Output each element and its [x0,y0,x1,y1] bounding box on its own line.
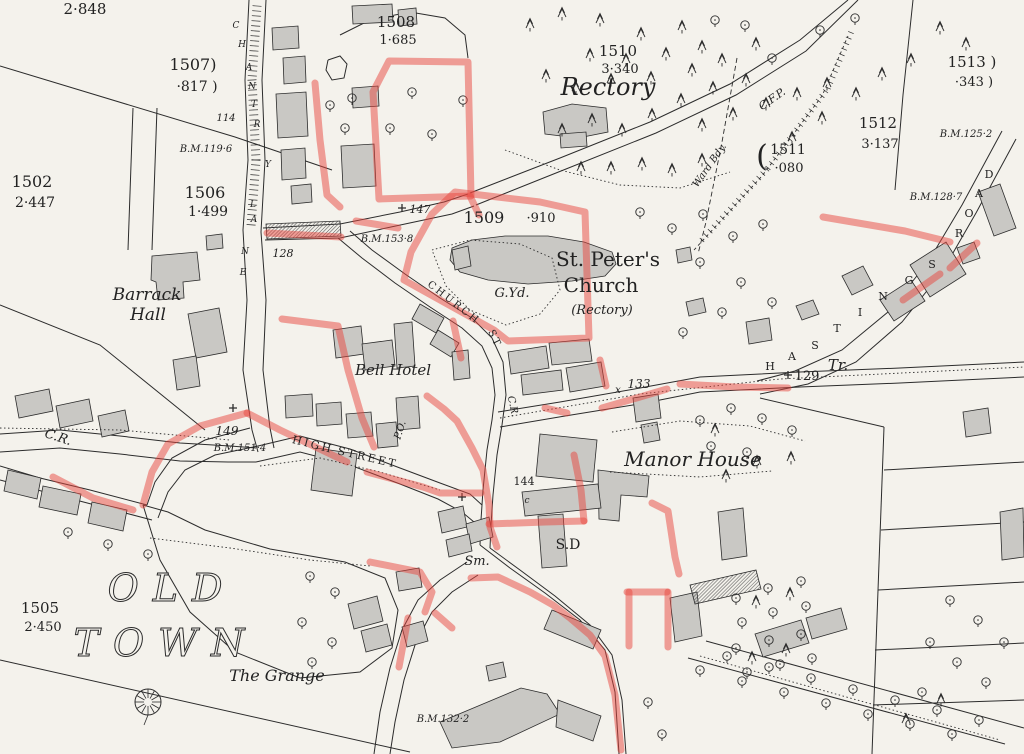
conifer-tree-icon [711,424,719,437]
building [15,389,53,418]
conifer-tree-icon [718,54,726,67]
layer-lbl: 2·8481507)·817 )114B.M.119·615022·447150… [12,0,997,725]
building [4,470,41,499]
map-label: Bell Hotel [354,361,431,379]
map-label: c [524,496,529,506]
deciduous-tree-icon [326,101,334,112]
conifer-tree-icon [729,108,737,121]
map-canvas: 2·8481507)·817 )114B.M.119·615022·447150… [0,0,1024,754]
deciduous-tree-icon [386,124,394,135]
deciduous-tree-icon [428,130,436,141]
conifer-tree-icon [607,162,615,175]
field-line [158,446,258,518]
building [746,318,772,344]
map-label: H [237,40,246,50]
building [272,26,299,50]
hatch-tick [251,21,260,22]
map-image: 2·8481507)·817 )114B.M.119·615022·447150… [0,0,1024,754]
conifer-tree-icon [558,8,566,21]
conifer-tree-icon [662,48,670,61]
building [686,298,706,316]
conifer-tree-icon [637,28,645,41]
map-label: 114 [216,113,235,124]
conifer-tree-icon [818,112,826,125]
building [98,410,129,437]
hatch-tick [250,175,259,176]
red-route-highlight [435,613,452,628]
building [508,346,549,374]
conifer-tree-icon [786,588,794,601]
map-label: B.M.125·2 [939,129,993,140]
conifer-tree-icon [752,596,760,609]
building [641,422,660,443]
building [536,434,597,482]
field-line [884,462,1024,470]
map-label: Church [564,273,639,297]
conifer-tree-icon [852,88,860,101]
deciduous-tree-icon [933,706,941,717]
deciduous-tree-icon [788,426,796,437]
deciduous-tree-icon [849,685,857,696]
map-label: 133 [628,377,651,391]
building [412,304,444,333]
map-label: T [833,322,841,335]
field-line [147,428,250,505]
field-line [152,108,157,250]
deciduous-tree-icon [306,572,314,583]
deciduous-tree-icon [738,677,746,688]
conifer-tree-icon [577,162,585,175]
deciduous-tree-icon [699,210,707,221]
conifer-tree-icon [878,68,886,81]
building [718,508,747,560]
map-label: 3·340 [601,62,638,77]
map-label: 1508 [377,13,415,31]
deciduous-tree-icon [64,528,72,539]
map-label: 1509 [464,208,505,227]
map-label: B.M.151·4 [213,443,267,454]
deciduous-tree-icon [658,730,666,741]
dashed-path [150,538,370,566]
conifer-tree-icon [787,452,795,465]
field-line [688,658,1005,744]
deciduous-tree-icon [758,414,766,425]
map-label: S [928,258,936,271]
map-label: B.M.119·6 [179,144,233,155]
map-label: 1512 [859,114,897,132]
map-label: Y [265,160,272,170]
deciduous-tree-icon [636,208,644,219]
hatch-tick [250,180,259,181]
map-label: 1506 [185,183,226,202]
deciduous-tree-icon [797,577,805,588]
deciduous-tree-icon [668,224,676,235]
deciduous-tree-icon [144,550,152,561]
map-label: O [964,207,973,220]
map-label: TOWN [74,621,259,665]
building [283,56,306,84]
field-line [875,643,1024,650]
hatch-tick [252,11,261,12]
hatch-tick [251,170,260,171]
red-route-highlight [399,618,408,667]
map-label: 1511 [770,142,806,158]
hatch-tick [846,37,852,39]
map-label: ·910 [527,211,556,226]
red-route-highlight [367,472,481,493]
building [188,308,227,358]
hatch-tick [249,195,258,196]
windmill-tail [144,715,148,725]
red-route-highlight [545,408,567,413]
field-line [895,0,913,190]
map-label: x [615,385,621,396]
map-label: S.D [556,537,581,553]
hatch-tick [250,46,259,47]
map-label: B.M.128·7 [909,192,963,203]
conifer-tree-icon [542,70,550,83]
conifer-tree-icon [902,714,910,727]
windmill-spoke [142,705,147,713]
map-label: D [985,168,994,181]
building [281,148,306,180]
deciduous-tree-icon [737,278,745,289]
conifer-tree-icon [793,88,801,101]
map-label: ·080 [775,161,804,176]
map-label: N [878,290,888,303]
deciduous-tree-icon [802,602,810,613]
deciduous-tree-icon [104,540,112,551]
field-line [128,108,133,250]
conifer-tree-icon [677,94,685,107]
deciduous-tree-icon [765,663,773,674]
building [963,408,991,437]
deciduous-tree-icon [864,710,872,721]
deciduous-tree-icon [696,416,704,427]
map-label: 2·848 [64,0,107,18]
hatch-tick [251,26,260,27]
red-route-highlight [489,521,584,524]
conifer-tree-icon [638,158,646,171]
hatch-tick [250,36,259,37]
deciduous-tree-icon [764,584,772,595]
map-label: C.F.P. [756,85,788,113]
deciduous-tree-icon [982,678,990,689]
building [341,144,376,188]
deciduous-tree-icon [408,88,416,99]
conifer-tree-icon [586,49,594,62]
deciduous-tree-icon [851,14,859,25]
building [978,184,1016,236]
map-label: 1510 [599,42,637,60]
conifer-tree-icon [722,470,730,483]
deciduous-tree-icon [644,698,652,709]
hatch-tick [848,31,854,33]
hatch-tick [250,185,259,186]
building [1000,508,1024,560]
map-label: L [249,200,256,210]
map-label: Barrack [112,285,182,305]
deciduous-tree-icon [696,666,704,677]
map-label: H [765,360,775,373]
deciduous-tree-icon [891,696,899,707]
map-label: 149 [216,424,239,438]
map-label: 1·685 [379,33,416,48]
field-line [760,398,884,427]
map-label: ·343 ) [955,75,993,90]
map-label: A [250,215,258,225]
deciduous-tree-icon [759,220,767,231]
hatch-tick [249,61,258,62]
red-route-highlight [373,61,471,199]
field-line [760,139,1016,394]
map-label: S [811,339,819,352]
building [522,484,601,516]
map-label: A [245,63,253,73]
red-route-highlight [356,221,398,228]
building [556,700,601,741]
deciduous-tree-icon [822,699,830,710]
map-label: 3·137 [861,137,898,152]
red-route-highlight [680,384,788,388]
map-label: 2·450 [24,620,61,635]
hatch-tick [248,76,257,77]
deciduous-tree-icon [331,588,339,599]
map-label: A [974,187,984,200]
building [316,402,342,426]
deciduous-tree-icon [808,654,816,665]
red-route-highlight [267,233,341,237]
map-label: OLD [108,566,237,610]
map-label: N [247,82,257,92]
building [521,370,563,395]
cross-mark [229,404,237,412]
map-label: 147 [410,203,431,216]
building [842,266,873,295]
hatch-tick [841,48,847,50]
building [348,596,383,629]
conifer-tree-icon [752,38,760,51]
deciduous-tree-icon [723,652,731,663]
red-route-highlight [823,217,950,242]
deciduous-tree-icon [816,26,824,37]
map-label: St. Peter's [556,247,660,271]
red-route-highlight [652,503,679,574]
hatch-tick [249,51,258,52]
map-label: Sm. [464,554,489,569]
deciduous-tree-icon [918,688,926,699]
deciduous-tree-icon [328,638,336,649]
hatch-tick [251,31,260,32]
map-label: Hall [129,305,166,325]
deciduous-tree-icon [718,308,726,319]
map-label: E [239,268,247,278]
windmill-spoke [151,696,159,701]
map-label: 144 [514,475,535,488]
map-label: 1507) [170,55,217,74]
map-label: N [240,247,250,257]
deciduous-tree-icon [298,618,306,629]
map-label: C [233,21,240,31]
conifer-tree-icon [596,14,604,27]
map-label: Ward Bdy. [691,142,729,190]
building [276,92,308,138]
map-label: B.M.153·8 [360,234,414,245]
deciduous-tree-icon [341,124,349,135]
map-label: Manor House [623,447,762,471]
map-label: 1505 [21,599,59,617]
conifer-tree-icon [698,41,706,54]
conifer-tree-icon [688,64,696,77]
map-label: G [905,274,914,287]
building [438,506,467,533]
map-label: 1513 ) [948,53,997,71]
conifer-tree-icon [678,21,686,34]
map-label: 129 [795,369,820,384]
building [452,246,471,270]
conifer-tree-icon [709,82,717,95]
deciduous-tree-icon [711,16,719,27]
map-label: C.R. [43,426,74,449]
conifer-tree-icon [748,652,756,665]
map-label: Rectory [560,73,656,101]
building [549,339,592,365]
conifer-tree-icon [698,119,706,132]
building [206,234,223,250]
field-line [878,582,1024,590]
deciduous-tree-icon [906,720,914,731]
building [486,662,506,681]
map-label: C.R. [505,395,520,418]
deciduous-tree-icon [741,21,749,32]
conifer-tree-icon [668,164,676,177]
conifer-tree-icon [907,54,915,67]
building [796,300,819,320]
hatch-tick [252,16,261,17]
map-label: Tr. [828,356,848,374]
building [173,356,200,390]
hatch-tick [251,165,260,166]
deciduous-tree-icon [768,298,776,309]
building [560,132,587,148]
map-label: 128 [273,247,294,260]
field-line [326,56,347,80]
deciduous-tree-icon [729,232,737,243]
deciduous-tree-icon [732,594,740,605]
conifer-tree-icon [526,19,534,32]
deciduous-tree-icon [738,618,746,629]
hatch-tick [250,41,259,42]
building [361,624,392,652]
deciduous-tree-icon [727,404,735,415]
dashed-path [612,421,805,441]
map-label: A [787,350,797,363]
hatched-strip [690,570,761,604]
deciduous-tree-icon [946,596,954,607]
deciduous-tree-icon [953,658,961,669]
windmill-spoke [151,704,159,709]
map-label: T [251,100,258,110]
map-label: ( [756,139,768,174]
windmill-spoke [137,696,145,701]
deciduous-tree-icon [679,328,687,339]
map-label: 1502 [12,172,53,191]
hatch-tick [249,190,258,191]
building [676,247,692,263]
field-line [0,660,410,752]
deciduous-tree-icon [696,258,704,269]
map-label: (Rectory) [571,303,633,318]
map-label: B.M.132·2 [416,714,470,725]
hatch-tick [249,56,258,57]
building [285,394,313,418]
deciduous-tree-icon [807,674,815,685]
map-label: R [253,120,261,130]
deciduous-tree-icon [780,688,788,699]
building [56,399,93,428]
building [806,608,847,639]
windmill-spoke [137,704,145,709]
deciduous-tree-icon [769,608,777,619]
map-label: R [955,227,964,240]
map-label: 1·499 [188,204,228,220]
conifer-tree-icon [936,22,944,35]
map-label: 2·447 [15,195,55,211]
building [291,184,312,204]
map-label: I [858,306,862,319]
deciduous-tree-icon [974,616,982,627]
conifer-tree-icon [962,38,970,51]
map-label: The Grange [229,666,325,685]
hatch-tick [844,43,850,45]
deciduous-tree-icon [948,730,956,741]
map-label: ·817 ) [176,79,217,95]
deciduous-tree-icon [975,716,983,727]
building [598,470,649,521]
hatch-tick [253,6,262,7]
map-label: G.Yd. [494,286,529,301]
windmill-spoke [150,705,155,713]
